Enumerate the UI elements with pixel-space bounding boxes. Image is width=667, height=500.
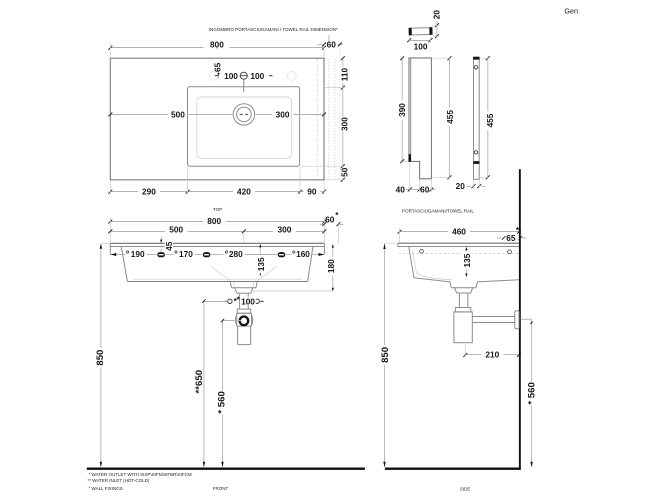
svg-text:500: 500 — [169, 225, 183, 235]
svg-text:* 560: * 560 — [526, 382, 537, 404]
svg-text:420: 420 — [237, 187, 251, 197]
svg-text:60: 60 — [325, 214, 335, 224]
svg-text:45: 45 — [164, 241, 174, 251]
svg-text:170: 170 — [179, 249, 193, 259]
svg-text:280: 280 — [229, 249, 243, 259]
svg-text:100: 100 — [250, 71, 264, 81]
svg-text:100: 100 — [414, 41, 428, 51]
svg-text:390: 390 — [397, 103, 407, 117]
svg-text:455: 455 — [445, 110, 455, 124]
svg-text:290: 290 — [142, 187, 156, 197]
svg-text:**650: **650 — [194, 370, 205, 393]
svg-text:PORTASCIUGAMANI/TOWEL RAIL: PORTASCIUGAMANI/TOWEL RAIL — [402, 208, 474, 213]
svg-text:TOP: TOP — [213, 207, 222, 212]
svg-text:100: 100 — [224, 71, 238, 81]
svg-text:* WATER OUTLET WITH SISP\SIFN\: * WATER OUTLET WITH SISP\SIFN\SIFBR\SIFC… — [89, 472, 192, 477]
svg-text:135: 135 — [462, 253, 472, 267]
svg-text:460: 460 — [452, 227, 466, 237]
svg-text:20: 20 — [456, 181, 466, 191]
svg-text:FRONT: FRONT — [213, 486, 229, 491]
svg-text:90: 90 — [307, 187, 317, 197]
svg-text:300: 300 — [339, 117, 349, 131]
svg-text:50: 50 — [339, 167, 349, 177]
svg-text:** WATER INLET (HOT-COLD): ** WATER INLET (HOT-COLD) — [88, 478, 150, 483]
svg-text:500: 500 — [171, 109, 185, 119]
svg-text:210: 210 — [485, 350, 499, 360]
svg-text:850: 850 — [95, 350, 106, 366]
svg-text:Gen:: Gen: — [564, 6, 580, 15]
svg-text:110: 110 — [339, 68, 349, 82]
svg-text:850: 850 — [380, 347, 391, 363]
svg-text:800: 800 — [207, 216, 221, 226]
svg-text:60: 60 — [327, 40, 337, 50]
svg-text:190: 190 — [131, 249, 145, 259]
svg-text:60: 60 — [420, 184, 430, 194]
svg-text:* 560: * 560 — [216, 391, 227, 413]
svg-text:° WALL FIXINGS: ° WALL FIXINGS — [89, 486, 123, 491]
svg-text:65: 65 — [212, 62, 222, 72]
svg-text:65: 65 — [506, 233, 516, 243]
svg-text:SIDE: SIDE — [460, 486, 471, 491]
svg-text:INGOMBRO PORTASCIUGAMANI / TOW: INGOMBRO PORTASCIUGAMANI / TOWEL RAIL DI… — [209, 27, 338, 32]
svg-text:135: 135 — [256, 257, 266, 271]
svg-text:300: 300 — [277, 225, 291, 235]
svg-text:20: 20 — [431, 10, 441, 20]
svg-text:300: 300 — [276, 109, 290, 119]
svg-text:160: 160 — [296, 249, 310, 259]
svg-text:180: 180 — [326, 259, 336, 273]
svg-text:800: 800 — [210, 40, 224, 50]
svg-text:100: 100 — [241, 297, 255, 307]
svg-text:455: 455 — [485, 113, 495, 127]
svg-text:40: 40 — [396, 184, 406, 194]
